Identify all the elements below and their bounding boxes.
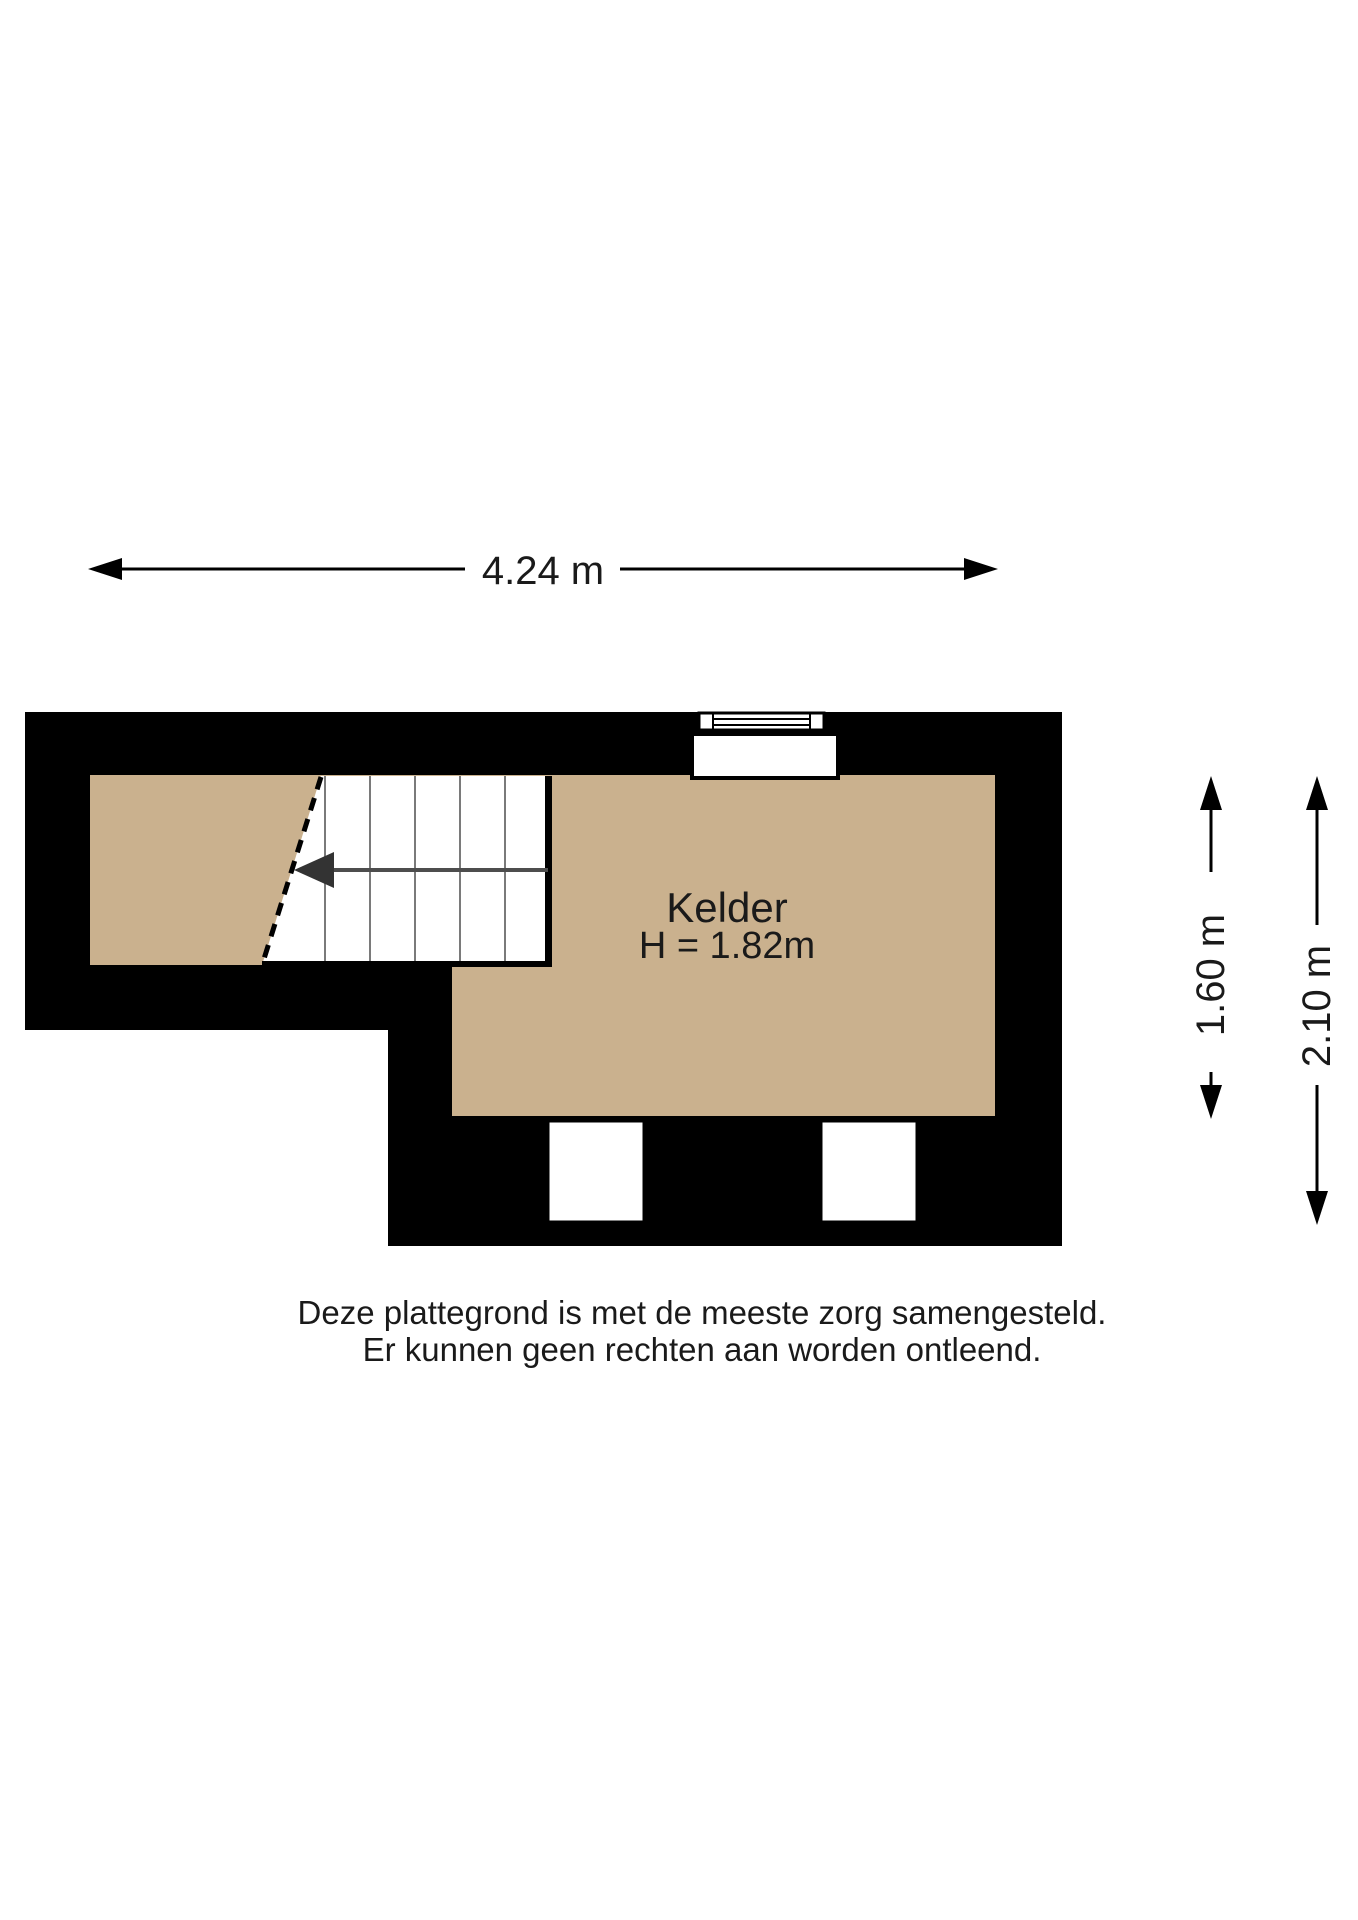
- window-glazing: [699, 713, 824, 730]
- arrow-down-icon: [1306, 1191, 1328, 1225]
- outer-wall-bottom: [388, 1116, 1062, 1246]
- window: [692, 712, 838, 778]
- disclaimer-line-1: Deze plattegrond is met de meeste zorg s…: [46, 1294, 1358, 1331]
- dim-inner-height: 1.60 m: [1189, 776, 1233, 1119]
- arrow-up-icon: [1306, 776, 1328, 810]
- outer-wall-top: [25, 712, 1062, 776]
- dim-outer-height: 2.10 m: [1295, 776, 1339, 1225]
- arrow-down-icon: [1200, 1085, 1222, 1119]
- stair-bottom-edge: [262, 961, 552, 967]
- arrow-left-icon: [88, 558, 122, 580]
- room-name-label: Kelder: [666, 884, 787, 931]
- dim-outer-height-label: 2.10 m: [1295, 945, 1339, 1067]
- door-opening-1: [548, 1121, 644, 1222]
- floor-plan: 4.24 m 1.60 m 2.10 m Kelder H = 1.82m: [0, 0, 1358, 1920]
- outer-wall-right: [995, 712, 1062, 1246]
- window-recess: [692, 734, 838, 778]
- arrow-up-icon: [1200, 776, 1222, 810]
- arrow-right-icon: [964, 558, 998, 580]
- door-opening-2: [821, 1121, 917, 1222]
- room-ceiling-height-label: H = 1.82m: [639, 925, 815, 967]
- dim-inner-height-label: 1.60 m: [1189, 914, 1233, 1036]
- disclaimer-line-2: Er kunnen geen rechten aan worden ontlee…: [46, 1331, 1358, 1368]
- leftwing-bottom-wall: [25, 963, 452, 1030]
- disclaimer: Deze plattegrond is met de meeste zorg s…: [46, 1294, 1358, 1368]
- dim-width: 4.24 m: [88, 549, 998, 593]
- dim-width-label: 4.24 m: [482, 549, 604, 593]
